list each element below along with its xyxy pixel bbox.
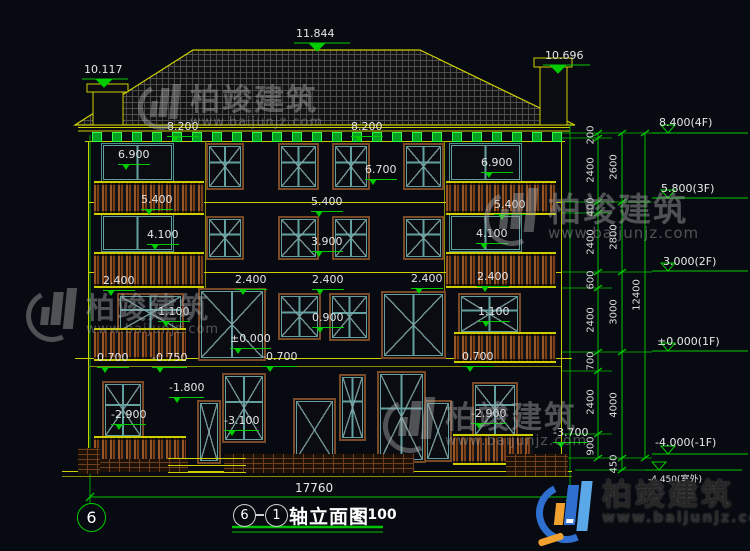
eave-bracket xyxy=(552,132,562,142)
elevation-label: -2.900 xyxy=(471,408,506,424)
window xyxy=(403,143,444,190)
elevation-label: 2.400 xyxy=(411,273,443,289)
elevation-label: 5.400 xyxy=(141,194,173,210)
elevation-label: 11.844 xyxy=(296,28,335,43)
dimension-value: 400 xyxy=(586,197,597,216)
dimension-value: 900 xyxy=(586,436,597,455)
eave-bracket xyxy=(452,132,462,142)
floor-marker-label: 5.800(3F) xyxy=(661,182,714,195)
elevation-label: 1.100 xyxy=(478,306,510,322)
window xyxy=(206,216,244,260)
title-axis-bubble-left: 6 xyxy=(233,504,256,527)
elevation-label: -3.100 xyxy=(224,415,259,431)
brick-base xyxy=(506,454,568,476)
eave-bracket xyxy=(392,132,402,142)
basement-door xyxy=(293,398,336,462)
cad-elevation-drawing: 11.84410.11710.6968.2008.2006.9006.7006.… xyxy=(0,0,750,551)
floor-marker-label: -4.000(-1F) xyxy=(655,436,716,449)
chimney-left xyxy=(87,84,128,125)
brick-base xyxy=(78,448,100,474)
elevation-label: -2.900 xyxy=(111,409,146,425)
elevation-label: 8.200 xyxy=(167,121,199,137)
eave-bracket xyxy=(112,132,122,142)
brick-base xyxy=(224,454,414,473)
wall-left-edge xyxy=(88,141,89,472)
basement-door xyxy=(424,400,452,462)
eave-bracket xyxy=(92,132,102,142)
floor-marker-label: 8.400(4F) xyxy=(659,116,712,129)
dimension-value: 4000 xyxy=(609,392,620,417)
elevation-label: 6.900 xyxy=(481,157,513,173)
elevation-label: ±0.000 xyxy=(230,333,271,349)
dimension-value: 2400 xyxy=(586,307,597,332)
ground-line-2 xyxy=(62,476,572,477)
eave-bracket xyxy=(252,132,262,142)
dimension-value: 2400 xyxy=(586,389,597,414)
elevation-label: 10.117 xyxy=(84,64,123,79)
logo-url-text: www.baijunjz.com xyxy=(602,511,750,525)
entry-door xyxy=(198,288,266,361)
elevation-label: 5.400 xyxy=(311,196,343,212)
overall-width-dimension: 17760 xyxy=(295,481,333,495)
eave-bracket xyxy=(332,132,342,142)
baijun-logo-icon xyxy=(536,481,594,545)
eave-bracket xyxy=(272,132,282,142)
dimension-value: 2400 xyxy=(586,157,597,182)
dimension-value: 200 xyxy=(586,125,597,144)
elevation-label: 4.100 xyxy=(147,229,179,245)
logo-brand-text: 柏竣建筑 xyxy=(602,481,750,511)
dimension-value: 700 xyxy=(586,351,597,370)
baijun-logo: 柏竣建筑 www.baijunjz.com xyxy=(536,481,750,545)
elevation-label: 3.900 xyxy=(311,236,343,252)
floor-marker-label: 3.000(2F) xyxy=(663,255,716,268)
window xyxy=(403,216,444,260)
eave-bracket xyxy=(492,132,502,142)
entry-steps xyxy=(168,452,246,473)
eave-bracket xyxy=(532,132,542,142)
elevation-label: 4.100 xyxy=(476,228,508,244)
wall-right-edge xyxy=(561,141,562,472)
elevation-label: 2.400 xyxy=(312,274,344,290)
eave-bracket xyxy=(412,132,422,142)
elevation-label: 2.400 xyxy=(477,271,509,287)
elevation-label: 5.400 xyxy=(494,199,526,215)
elevation-label: 6.700 xyxy=(365,164,397,180)
eave-bracket xyxy=(312,132,322,142)
eave-bracket xyxy=(212,132,222,142)
elevation-label: 2.400 xyxy=(103,275,135,291)
dimension-value: 600 xyxy=(586,270,597,289)
dimension-value: 450 xyxy=(609,454,620,473)
double-door xyxy=(381,291,446,359)
basement-window-tall xyxy=(377,371,426,463)
elevation-label: 0.900 xyxy=(312,312,344,328)
eave-bracket xyxy=(132,132,142,142)
window xyxy=(206,143,244,190)
elevation-label: 1.100 xyxy=(158,306,190,322)
eave-bracket xyxy=(292,132,302,142)
elevation-label: 8.200 xyxy=(351,121,383,137)
axis-bubble-6: 6 xyxy=(77,503,106,532)
title-axis-bubble-right: 1 xyxy=(265,504,288,527)
elevation-label: 0.700 xyxy=(462,351,494,367)
elevation-label: -0.700 xyxy=(262,351,297,367)
title-axis-dash xyxy=(255,514,264,516)
drawing-scale: 1:100 xyxy=(352,507,397,523)
eave-bracket xyxy=(512,132,522,142)
elevation-label: 2.400 xyxy=(235,274,267,290)
floor-marker-label: ±0.000(1F) xyxy=(657,335,720,348)
elevation-label: 10.696 xyxy=(545,50,584,65)
elevation-label: -0.750 xyxy=(152,352,187,368)
dimension-total: 12400 xyxy=(632,279,643,311)
basement-window xyxy=(339,374,366,441)
elevation-label: -3.700 xyxy=(553,427,588,443)
eave-bracket xyxy=(472,132,482,142)
dimension-value: 2800 xyxy=(609,224,620,249)
eave-bracket xyxy=(432,132,442,142)
dimension-value: 3000 xyxy=(609,299,620,324)
elevation-label: 6.900 xyxy=(118,149,150,165)
eave-bracket xyxy=(232,132,242,142)
dimension-value: 2400 xyxy=(586,229,597,254)
elevation-label: 0.700 xyxy=(97,352,129,368)
eave-bracket xyxy=(152,132,162,142)
elevation-label: -1.800 xyxy=(169,382,204,398)
dimension-value: 2600 xyxy=(609,154,620,179)
roof xyxy=(75,50,575,125)
window xyxy=(278,143,319,190)
